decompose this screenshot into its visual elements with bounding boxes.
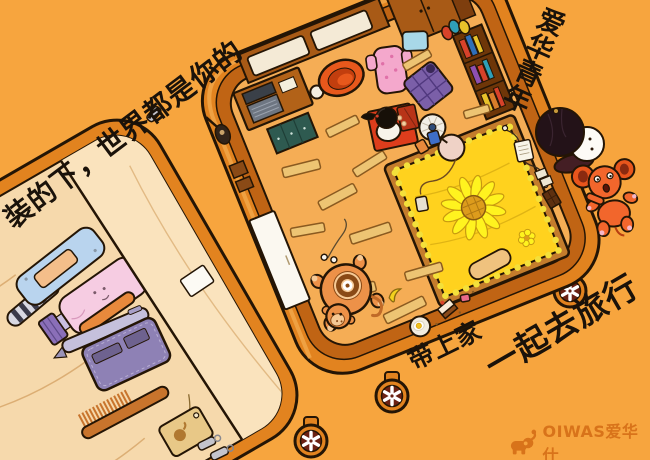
poster: 装的下，世界都是你的 爱华青年 带上家 一起去旅行 OIWAS爱华仕 (0, 0, 650, 460)
suitcase-illustration (0, 0, 650, 460)
cap-icon (536, 108, 584, 156)
elephant-logo-icon (508, 428, 541, 456)
candy (460, 294, 470, 302)
oiwas-logo: OIWAS爱华仕 (508, 418, 650, 460)
notepad-icon (514, 139, 534, 162)
blue-shirt (402, 31, 428, 51)
logo-text: OIWAS爱华仕 (543, 418, 650, 460)
charger (415, 196, 428, 212)
